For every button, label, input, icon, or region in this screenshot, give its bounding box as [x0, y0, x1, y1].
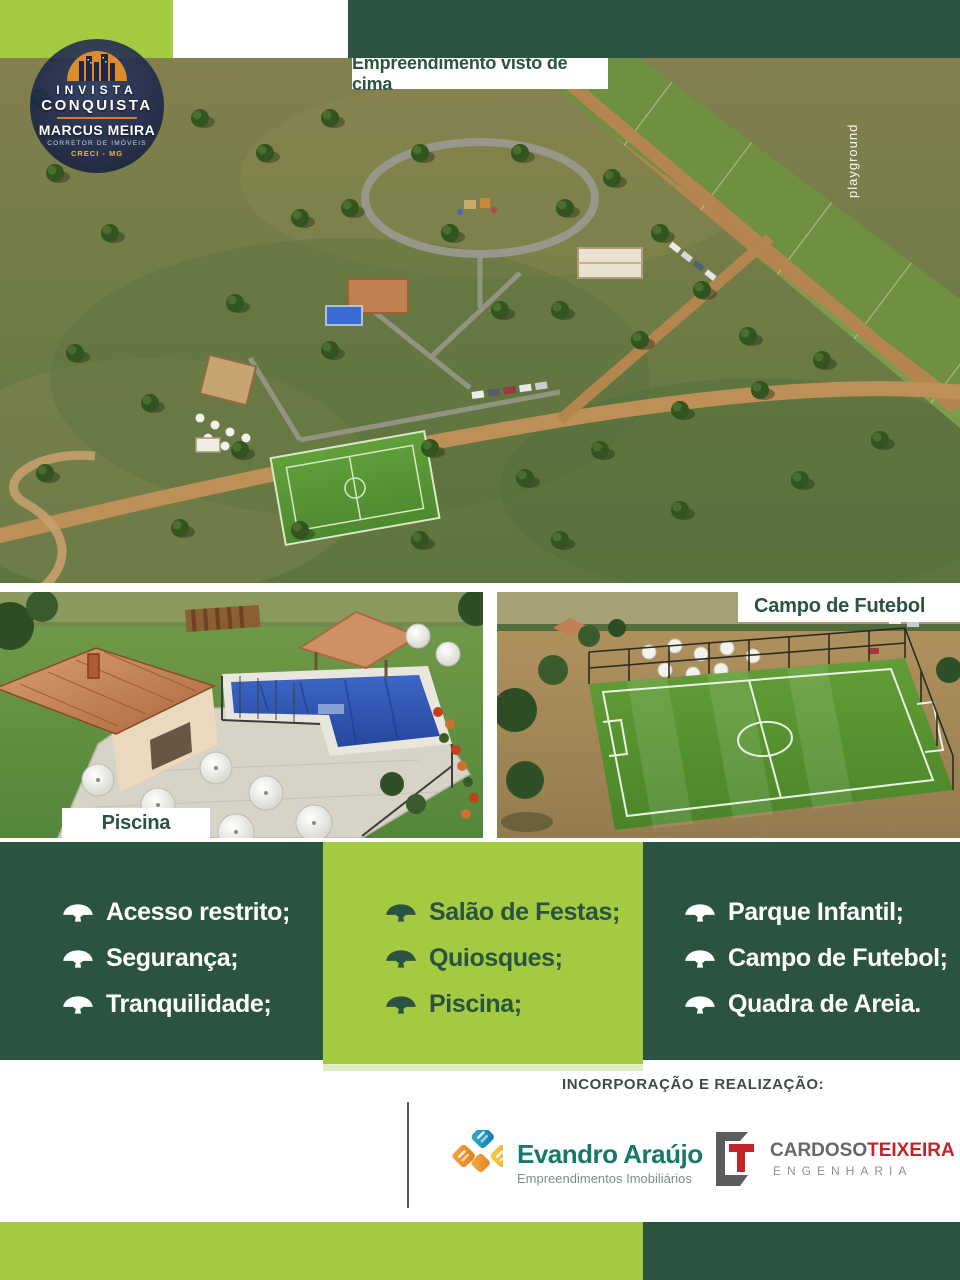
pool-art: [0, 592, 483, 838]
tree-icon: [684, 949, 716, 969]
badge-creci: CRECI - MG: [71, 149, 123, 158]
feature-item: Salão de Festas;: [385, 898, 620, 927]
feature-item: Quadra de Areia.: [684, 990, 948, 1019]
cardoso-teixeira-name: CARDOSOTEIXEIRA: [770, 1140, 955, 1162]
badge-name: MARCUS MEIRA: [39, 122, 155, 138]
feature-label: Salão de Festas;: [429, 898, 620, 927]
feature-item: Tranquilidade;: [62, 990, 290, 1019]
cardoso-text: CARDOSO: [770, 1140, 867, 1161]
evandro-araujo-logo-icon: [437, 1130, 503, 1194]
top-strip-dark: [348, 0, 960, 58]
cardoso-teixeira-logo-icon: [712, 1128, 758, 1190]
evandro-araujo-subtitle: Empreendimentos Imobiliários: [517, 1171, 703, 1186]
soccer-field-art: [497, 592, 960, 838]
tree-icon: [684, 995, 716, 1015]
soccer-caption: Campo de Futebol: [738, 590, 960, 622]
realtor-badge: INVISTA CONQUISTA MARCUS MEIRA CORRETOR …: [30, 39, 164, 173]
tree-icon: [62, 995, 94, 1015]
feature-label: Acesso restrito;: [106, 898, 290, 927]
pool-image: Piscina: [0, 592, 483, 838]
feature-label: Piscina;: [429, 990, 522, 1019]
badge-line2: CONQUISTA: [41, 97, 152, 114]
tree-icon: [684, 903, 716, 923]
tree-icon: [385, 903, 417, 923]
tree-icon: [62, 903, 94, 923]
aerial-caption: Empreendimento visto de cima: [352, 58, 608, 89]
feature-label: Parque Infantil;: [728, 898, 904, 927]
feature-item: Acesso restrito;: [62, 898, 290, 927]
tree-icon: [62, 949, 94, 969]
footer-heading: INCORPORAÇÃO E REALIZAÇÃO:: [562, 1076, 824, 1093]
cardoso-teixeira-subtitle: ENGENHARIA: [773, 1164, 955, 1178]
features-list-3: Parque Infantil; Campo de Futebol; Quadr…: [684, 898, 948, 1036]
cardoso-teixeira-brand: CARDOSOTEIXEIRA ENGENHARIA: [712, 1128, 955, 1190]
feature-item: Quiosques;: [385, 944, 620, 973]
tree-icon: [385, 949, 417, 969]
soccer-field-image: Campo de Futebol: [497, 592, 960, 838]
bottom-strip-light: [0, 1222, 643, 1280]
features-col2-fade: [323, 1064, 643, 1071]
feature-label: Campo de Futebol;: [728, 944, 948, 973]
feature-item: Campo de Futebol;: [684, 944, 948, 973]
feature-item: Piscina;: [385, 990, 620, 1019]
feature-label: Quiosques;: [429, 944, 563, 973]
tree-icon: [385, 995, 417, 1015]
feature-item: Parque Infantil;: [684, 898, 948, 927]
pool-caption: Piscina: [62, 808, 210, 838]
skyline-icon: [65, 47, 129, 81]
evandro-araujo-name: Evandro Araújo: [517, 1139, 703, 1170]
playground-annotation: playground: [845, 103, 865, 198]
feature-label: Segurança;: [106, 944, 238, 973]
badge-role: CORRETOR DE IMÓVEIS: [47, 140, 147, 147]
feature-label: Tranquilidade;: [106, 990, 271, 1019]
features-list-1: Acesso restrito; Segurança; Tranquilidad…: [62, 898, 290, 1036]
footer-divider: [407, 1102, 409, 1208]
teixeira-text: TEIXEIRA: [867, 1140, 955, 1161]
badge-divider: [57, 117, 137, 119]
flyer-page: playground Empreendimento visto de cima …: [0, 0, 960, 1280]
bottom-strip-dark: [643, 1222, 960, 1280]
features-list-2: Salão de Festas; Quiosques; Piscina;: [385, 898, 620, 1036]
badge-line1: INVISTA: [56, 83, 137, 97]
feature-item: Segurança;: [62, 944, 290, 973]
feature-label: Quadra de Areia.: [728, 990, 921, 1019]
evandro-araujo-brand: Evandro Araújo Empreendimentos Imobiliár…: [437, 1130, 703, 1194]
